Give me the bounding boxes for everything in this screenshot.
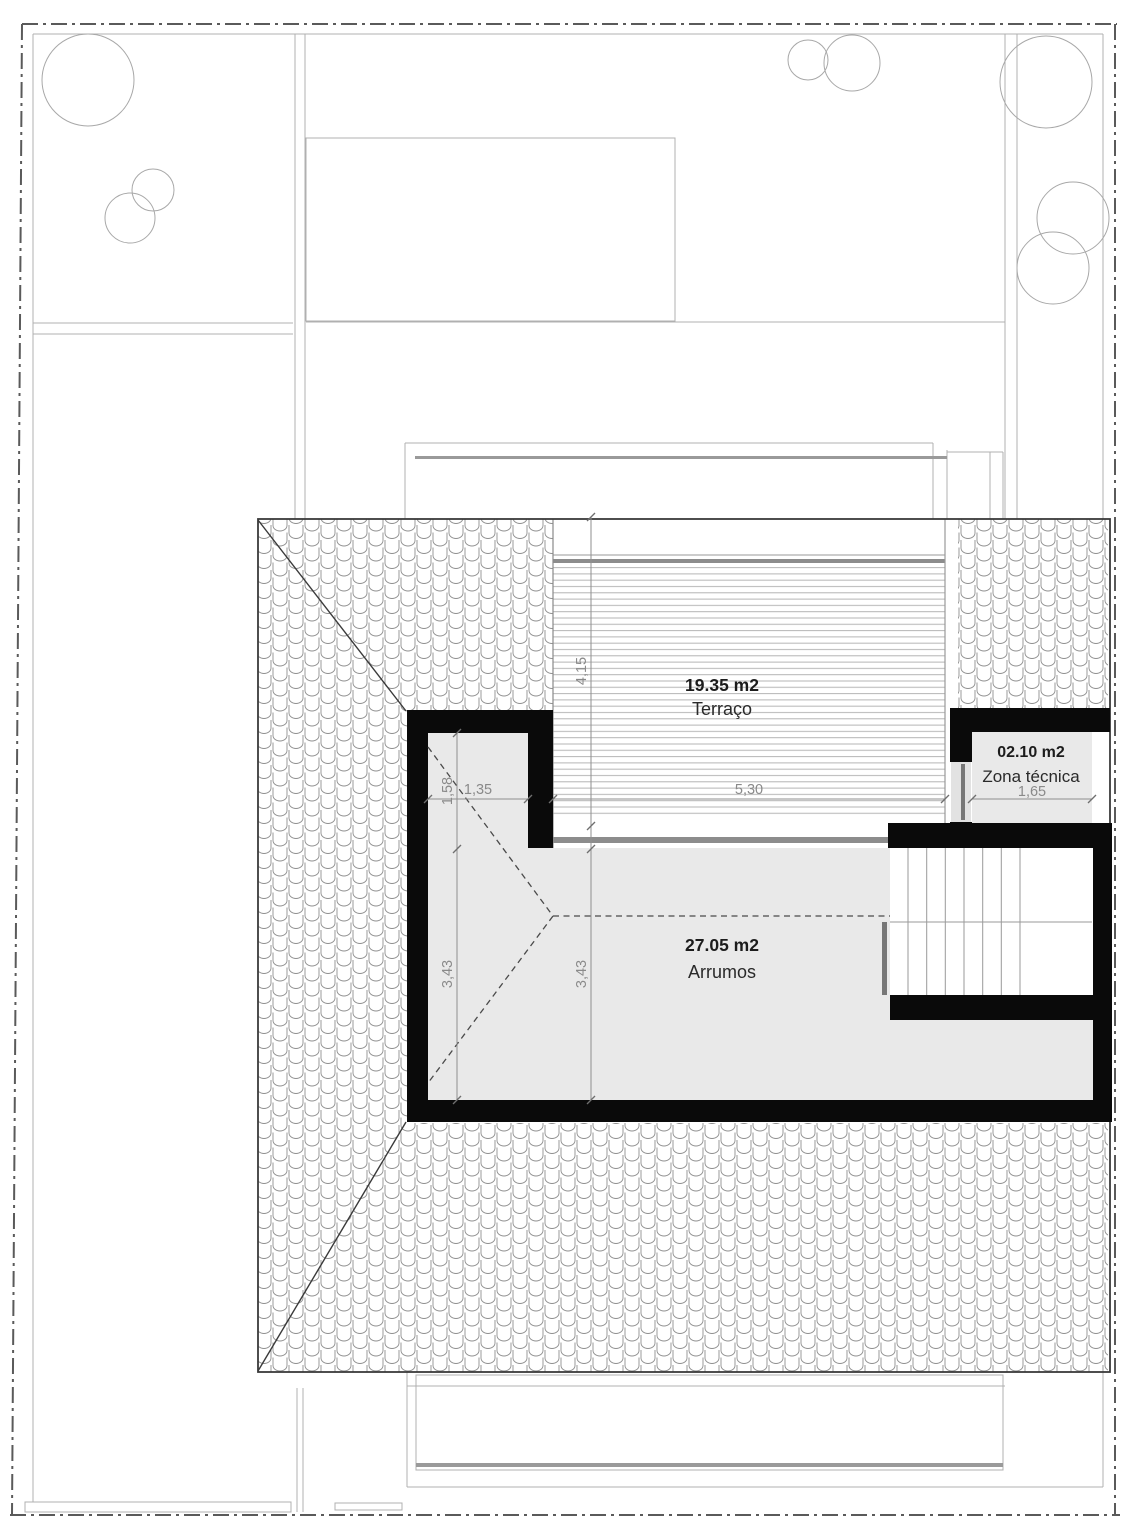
lower-floor-bottom-outline: [416, 1375, 1003, 1470]
arrumos-name-label: Arrumos: [688, 962, 756, 982]
tree-icon: [105, 193, 155, 243]
zona-tecnica-door-leaf: [961, 764, 965, 820]
terrace-bottom-band: [553, 837, 888, 843]
dim-inner-span-label: 3,43: [574, 960, 590, 988]
dim-terrace-width-label: 5,30: [735, 782, 763, 798]
terrace-top-band: [553, 559, 945, 563]
roof-tiles-top-left: [258, 519, 553, 710]
wall-bottom-band: [407, 1100, 1112, 1122]
dim-terrace-depth-label: 4,15: [574, 657, 590, 685]
wall-zona-tecnica-left-upper: [950, 708, 972, 762]
bottom-wall-strip-left: [25, 1502, 291, 1512]
lower-terrace-gray-band-top: [415, 456, 947, 459]
tree-icon: [42, 34, 134, 126]
boundary-left: [12, 24, 22, 1515]
wall-stairs-top-band: [888, 823, 1112, 848]
dim-zona-tecnica-width-label: 1,65: [1018, 784, 1046, 800]
lower-terrace-gray-band-bottom: [416, 1463, 1003, 1467]
staircase: [882, 848, 1092, 995]
dim-notch-depth-label: 1,58: [440, 777, 456, 805]
stairs-handrail: [882, 922, 887, 995]
terraco-name-label: Terraço: [692, 699, 752, 719]
tree-icon: [788, 40, 828, 80]
roof-tiles-top-right: [958, 519, 1108, 708]
terraco-area-label: 19.35 m2: [685, 675, 759, 695]
tree-icon: [132, 169, 174, 211]
tree-icon: [1037, 182, 1109, 254]
tree-icon: [824, 35, 880, 91]
arrumos-area-label: 27.05 m2: [685, 935, 759, 955]
tree-icon: [1017, 232, 1089, 304]
dim-notch-width-label: 1,35: [464, 782, 492, 798]
wall-notch-column: [528, 733, 553, 848]
floor-plan-canvas: 19.35 m2 Terraço 02.10 m2 Zona técnica 2…: [0, 0, 1125, 1526]
wall-stairs-bottom-band: [890, 995, 1093, 1020]
roof-tiles-left-band: [258, 710, 407, 1372]
trees: [42, 34, 1109, 304]
garden-patio-outline: [306, 138, 675, 321]
tree-icon: [1000, 36, 1092, 128]
wall-zona-tecnica-top: [950, 708, 1110, 732]
floor-plan-drawing: 19.35 m2 Terraço 02.10 m2 Zona técnica 2…: [0, 0, 1125, 1526]
wall-left: [407, 710, 428, 1122]
bottom-wall-strip-center: [335, 1503, 402, 1510]
wall-top-left-band: [407, 710, 553, 733]
wall-right-column: [1093, 823, 1112, 1100]
roof-tiles-bottom: [407, 1123, 1108, 1372]
zona-tecnica-area-label: 02.10 m2: [997, 744, 1065, 761]
dim-left-span-label: 3,43: [440, 960, 456, 988]
